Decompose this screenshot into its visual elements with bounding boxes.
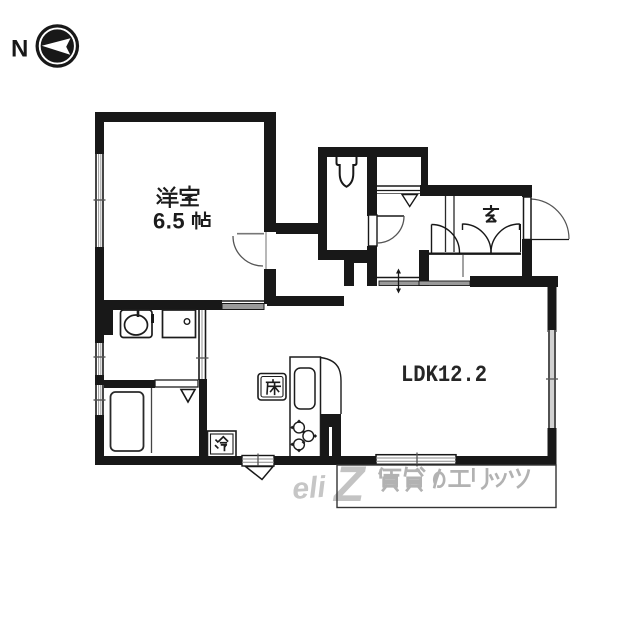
svg-text:eli: eli [291,471,327,506]
svg-text:6.5: 6.5 [153,209,185,234]
svg-text:LDK12.2: LDK12.2 [401,362,487,388]
svg-text:N: N [11,36,28,63]
